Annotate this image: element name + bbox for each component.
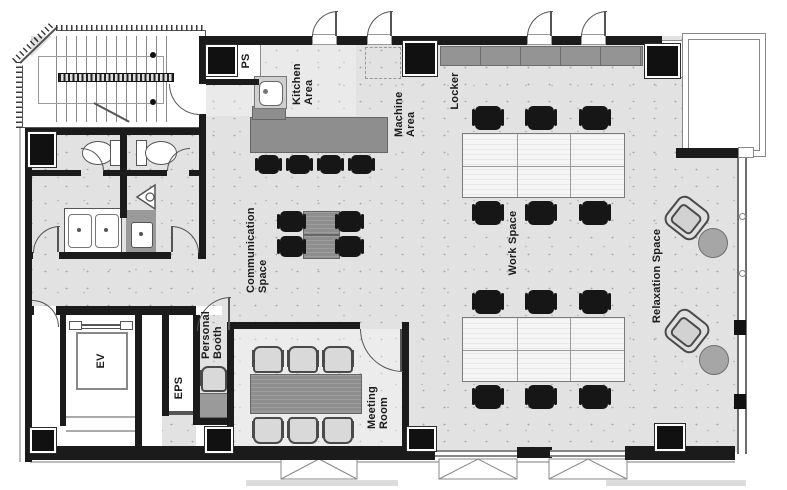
- stair-right-wall: [199, 36, 206, 258]
- ps-bottom-wall: [203, 79, 259, 85]
- column: [30, 428, 56, 453]
- toilet-column: [28, 132, 56, 167]
- toilet-bottom-wall-a: [25, 252, 33, 259]
- sidewalk-line-2: [606, 480, 746, 486]
- top-door-leaf-4: [604, 11, 606, 36]
- left-outer-line: [19, 128, 21, 462]
- awning-window-1: [280, 458, 358, 480]
- column: [645, 44, 680, 78]
- work-chair: [582, 290, 608, 314]
- kitchen-stool: [258, 155, 279, 174]
- eps-bottom-line: [169, 411, 193, 415]
- stair-dot-bottom: [150, 99, 156, 105]
- kitchen-area-label: Kitchen Area: [292, 59, 316, 105]
- work-chair: [528, 201, 554, 225]
- ps-column: [206, 45, 237, 76]
- toilet-entry-leaf-left: [57, 226, 59, 252]
- side-table-2: [699, 345, 729, 375]
- vanity-tap-1: [77, 228, 81, 232]
- ev-door-line-2: [80, 328, 124, 329]
- top-wall-2: [337, 36, 367, 45]
- glazing-mullion-1: [734, 320, 746, 335]
- communication-space-label: Communication Space: [246, 201, 270, 293]
- closet-right-wall: [60, 314, 66, 426]
- meeting-chair: [323, 417, 353, 444]
- work-chair: [582, 385, 608, 409]
- bottom-window-rail-2: [550, 450, 625, 457]
- column: [205, 427, 233, 453]
- bottom-window-rail-1: [435, 450, 517, 457]
- communication-chair: [280, 236, 303, 257]
- toilet-mid-wall-b: [103, 170, 167, 176]
- toilet-center-wall: [120, 134, 127, 218]
- ps-label: PS: [241, 53, 253, 68]
- right-glazing-outer: [745, 158, 747, 454]
- kitchen-stool: [289, 155, 310, 174]
- work-chair: [582, 201, 608, 225]
- work-desk-bank-1: [462, 133, 625, 198]
- top-wall-4: [552, 36, 581, 45]
- kitchen-stool: [320, 155, 341, 174]
- toilet-mid-wall-a: [31, 170, 81, 176]
- bottom-outer-line: [30, 461, 735, 463]
- work-chair: [528, 106, 554, 130]
- locker-cabinets: [440, 46, 643, 66]
- awning-window-2: [438, 458, 518, 480]
- kitchen-tap: [263, 89, 268, 94]
- bottom-wall-mid: [517, 447, 552, 458]
- ev-door-bracket-right: [120, 321, 133, 330]
- ev-door-bracket-left: [69, 321, 82, 330]
- top-door-leaf-2: [390, 11, 392, 36]
- stair-dot-top: [150, 52, 156, 58]
- stair-door-gap: [199, 84, 206, 114]
- toilet-entry-leaf-right: [171, 226, 173, 252]
- meeting-room-label: Meeting Room: [367, 379, 391, 429]
- meeting-chair: [253, 346, 283, 373]
- alcove-tap: [139, 232, 143, 236]
- stair-hatch-left: [16, 62, 22, 128]
- vanity-tap-2: [104, 228, 108, 232]
- work-space-label: Work Space: [508, 211, 520, 276]
- meeting-top-wall: [227, 322, 360, 329]
- left-wall: [25, 128, 32, 462]
- column: [407, 427, 436, 451]
- machine-area-label: Machine Area: [394, 87, 418, 137]
- eps-left-wall: [162, 306, 169, 416]
- work-desk-bank-2: [462, 317, 625, 382]
- eps-label: EPS: [174, 377, 186, 400]
- relaxation-space-label: Relaxation Space: [652, 229, 664, 323]
- glazing-dot-2: [739, 270, 746, 277]
- desk-divider: [463, 350, 624, 351]
- communication-chair: [338, 211, 361, 232]
- meeting-chair: [253, 417, 283, 444]
- ev-top-wall: [30, 306, 205, 315]
- right-glazing-inner: [737, 158, 739, 454]
- ev-pit-line-2: [66, 430, 135, 432]
- desk-divider: [463, 166, 624, 167]
- balcony-bottom-wall: [676, 148, 738, 158]
- personal-booth-label: Personal Booth: [201, 307, 225, 359]
- toilet-mid-wall-c: [189, 170, 199, 176]
- glazing-mullion-2: [734, 394, 746, 409]
- communication-table-divider: [303, 234, 340, 236]
- stair-hatch-top: [56, 25, 206, 31]
- work-chair: [528, 290, 554, 314]
- communication-chair: [280, 211, 303, 232]
- column: [403, 41, 437, 76]
- ev-label: EV: [96, 353, 108, 368]
- side-table-1: [698, 228, 728, 258]
- top-door-leaf-1: [335, 11, 337, 36]
- awning-window-3: [548, 458, 628, 480]
- work-chair: [475, 106, 501, 130]
- floor-plan: PS EV: [0, 0, 787, 490]
- kitchen-sink: [259, 81, 283, 106]
- balcony-inner-rail: [688, 39, 760, 151]
- meeting-table: [250, 374, 362, 414]
- work-chair: [528, 385, 554, 409]
- sidewalk-line-1: [246, 480, 398, 486]
- meeting-chair: [323, 346, 353, 373]
- top-door-leaf-3: [550, 11, 552, 36]
- meeting-door-leaf: [400, 329, 402, 371]
- kitchen-counter: [250, 117, 388, 153]
- glazing-dot-1: [739, 213, 746, 220]
- work-chair: [582, 106, 608, 130]
- toilet-bottom-wall-b: [59, 252, 171, 259]
- kitchen-stool: [351, 155, 372, 174]
- urinal: [131, 182, 159, 212]
- ev-pit-line-1: [66, 416, 135, 418]
- toilet-bottom-wall-c: [198, 252, 206, 259]
- ev-door-line-1: [80, 324, 124, 326]
- work-chair: [475, 385, 501, 409]
- booth-desk: [197, 393, 230, 418]
- locker-label: Locker: [450, 72, 462, 109]
- stair-rail: [58, 73, 174, 82]
- meeting-chair: [288, 346, 318, 373]
- top-wall-1: [200, 36, 312, 45]
- booth-chair: [201, 366, 227, 392]
- meeting-chair: [288, 417, 318, 444]
- booth-door-leaf: [228, 297, 230, 330]
- machine-equipment-outline: [365, 47, 401, 79]
- communication-chair: [338, 236, 361, 257]
- work-chair: [475, 290, 501, 314]
- balcony-corner-notch: [738, 147, 754, 158]
- work-chair: [475, 201, 501, 225]
- ev-right-wall: [135, 306, 142, 448]
- column: [655, 424, 685, 451]
